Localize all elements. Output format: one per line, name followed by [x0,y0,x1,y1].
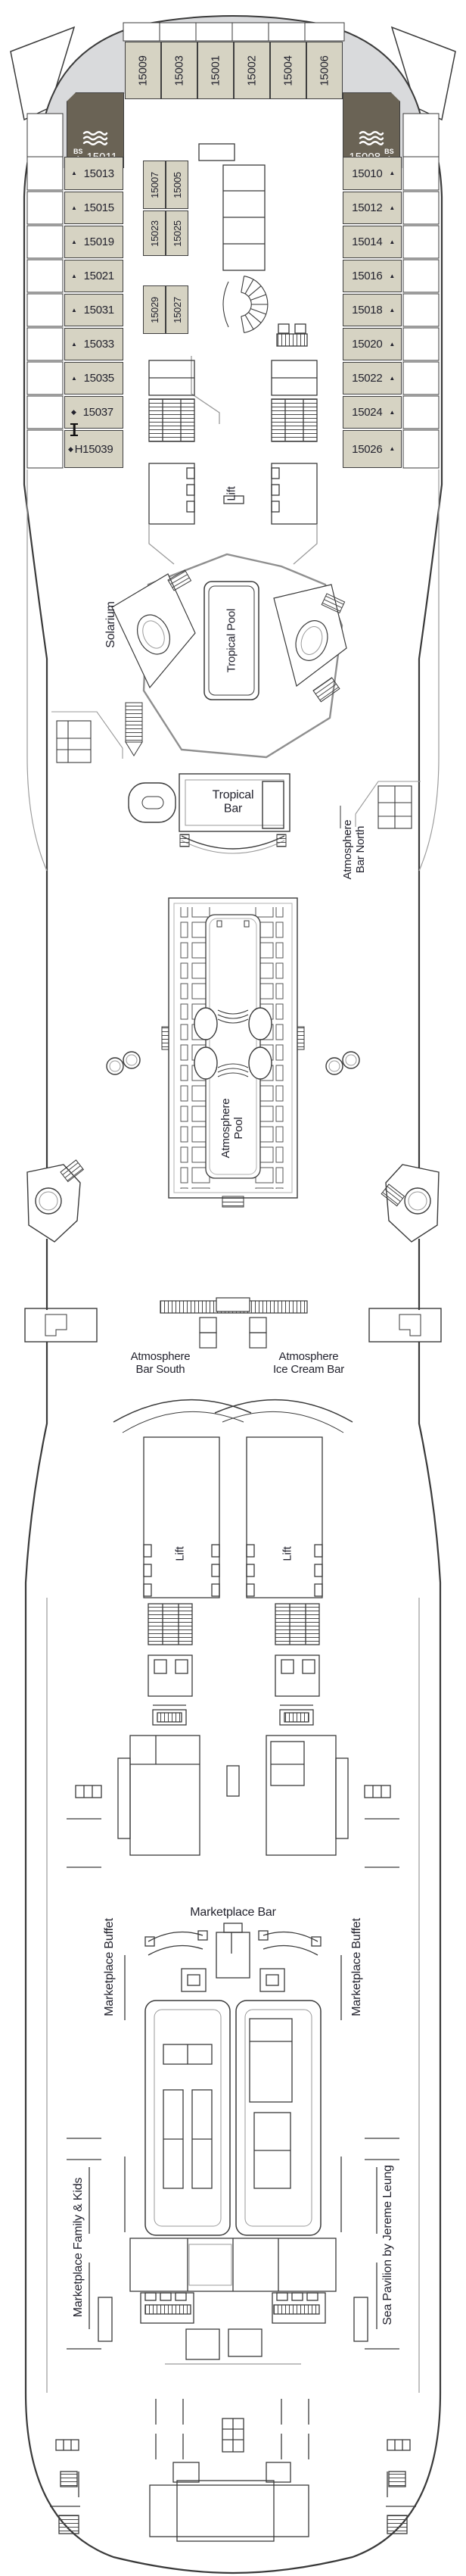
label-sea-pavilion: Sea Pavilion by Jereme Leung [381,2165,395,2325]
cabin-15002[interactable]: 15002 [234,42,270,99]
forward-lift-core [149,360,317,564]
triangle-icon: ▲ [71,307,77,313]
cabin-number: 15018 [352,304,382,317]
cabin-15009[interactable]: 15009 [125,42,161,99]
label-tropical-bar: TropicalBar [213,789,254,817]
cabin-15006[interactable]: 15006 [306,42,343,99]
cabin-number: 15023 [149,220,160,247]
stern-structures [50,2399,416,2541]
cabin-number: 15037 [83,406,113,419]
label-atmosphere-bar-north: AtmosphereBar North [341,820,368,880]
cabin-15012[interactable]: ▲15012 [343,192,402,224]
cabin-15024[interactable]: ▲15024 [343,396,402,429]
atmosphere-bar-counter [160,1298,307,1348]
diamond-icon: ◆ [71,409,76,416]
cabin-number: 15007 [149,172,160,198]
label-lift-port: Lift [173,1546,186,1561]
cabin-15020[interactable]: ▲15020 [343,328,402,360]
waves-icon [82,130,109,147]
cabin-number: 15029 [149,297,160,323]
bow-balcony-strip [123,23,344,41]
label-marketplace-bar: Marketplace Bar [190,1906,276,1920]
cabin-15033[interactable]: ▲15033 [64,328,123,360]
triangle-icon: ▲ [71,239,77,245]
cabin-number: 15021 [84,270,114,282]
cabin-number: 15033 [84,338,114,351]
cabin-15005[interactable]: 15005 [166,161,188,209]
deck-plan: BS ◆ 15011 BS ◆ 15008 15009 15003 15001 … [0,0,466,2576]
cabin-15015[interactable]: ▲15015 [64,192,123,224]
triangle-icon: ▲ [389,170,395,176]
triangle-icon: ▲ [389,446,395,452]
cabin-15013[interactable]: ▲15013 [64,157,123,190]
cabin-number: 15019 [84,235,114,248]
triangle-icon: ▲ [389,205,395,211]
cabin-number: 15013 [84,167,114,180]
label-marketplace-buffet-port: Marketplace Buffet [103,1918,116,2016]
triangle-icon: ▲ [71,205,77,211]
fan-stair [223,276,268,333]
cabin-number: 15015 [84,201,114,214]
cabin-number: 15026 [352,443,382,456]
cabin-15029[interactable]: 15029 [143,285,166,334]
cabin-15014[interactable]: ▲15014 [343,226,402,258]
cabin-number: 15035 [84,372,114,385]
cabin-number: 15005 [172,172,183,198]
cabin-15022[interactable]: ▲15022 [343,362,402,395]
marketplace-structures [98,1923,368,2364]
cabin-number: 15006 [318,55,331,86]
cabin-number: 15014 [352,235,382,248]
label-solarium: Solarium [104,601,118,648]
triangle-icon: ▲ [389,307,395,313]
connecting-rooms-icon [70,423,78,436]
label-lift-starboard: Lift [281,1546,294,1561]
hull-outline [24,115,442,2573]
triangle-icon: ▲ [389,239,395,245]
waves-icon [358,130,385,147]
cabin-15031[interactable]: ▲15031 [64,294,123,326]
cabin-number: 15003 [173,55,186,86]
triangle-icon: ▲ [71,170,77,176]
triangle-icon: ▲ [389,273,395,279]
cabin-number: 15010 [352,167,382,180]
cabin-15019[interactable]: ▲15019 [64,226,123,258]
cabin-number: 15016 [352,270,382,282]
cabin-number: 15012 [352,201,382,214]
cabin-15021[interactable]: ▲15021 [64,260,123,292]
cabin-number: 15009 [137,55,150,86]
cabin-15007[interactable]: 15007 [143,161,166,209]
atmosphere-pool-structure [107,898,359,1207]
diamond-icon: ◆ [68,446,73,453]
cabin-15026[interactable]: ▲15026 [343,430,402,468]
cabin-15004[interactable]: 15004 [270,42,306,99]
triangle-icon: ▲ [389,410,395,416]
cabin-15035[interactable]: ▲15035 [64,362,123,395]
midship-lift-lobbies [76,1400,390,1855]
cabin-number: 15020 [352,338,382,351]
triangle-icon: ▲ [71,273,77,279]
cabin-15001[interactable]: 15001 [197,42,234,99]
cabin-15003[interactable]: 15003 [161,42,197,99]
cabin-15016[interactable]: ▲15016 [343,260,402,292]
label-atmosphere-pool: AtmospherePool [219,1099,246,1159]
label-atmosphere-ice-cream-bar: AtmosphereIce Cream Bar [273,1350,344,1377]
cabin-number: 15031 [84,304,114,317]
inner-deck-lines [27,469,439,2393]
cabin-number: 15027 [172,297,183,323]
triangle-icon: ▲ [389,376,395,382]
cabin-15010[interactable]: ▲15010 [343,157,402,190]
triangle-icon: ▲ [71,376,77,382]
label-marketplace-family-kids: Marketplace Family & Kids [72,2178,85,2317]
cabin-number: 15001 [210,55,222,86]
cabin-15018[interactable]: ▲15018 [343,294,402,326]
label-tropical-pool: Tropical Pool [225,609,238,672]
cabin-number: 15002 [246,55,259,86]
whirlpool-pods [25,1160,441,1342]
label-lift-forward: Lift [225,486,238,501]
triangle-icon: ▲ [71,341,77,348]
label-atmosphere-bar-south: AtmosphereBar South [131,1350,191,1377]
cabin-number: 15004 [282,55,295,86]
triangle-icon: ▲ [389,341,395,348]
label-marketplace-buffet-starboard: Marketplace Buffet [350,1918,364,2016]
cabin-number: 15022 [352,372,382,385]
forward-service-rooms [191,144,307,424]
cabin-number: 15025 [172,220,183,247]
cabin-number: H15039 [75,443,113,456]
cabin-number: 15024 [352,406,382,419]
cabin-15025[interactable]: 15025 [166,211,188,256]
cabin-15027[interactable]: 15027 [166,285,188,334]
cabin-15023[interactable]: 15023 [143,211,166,256]
